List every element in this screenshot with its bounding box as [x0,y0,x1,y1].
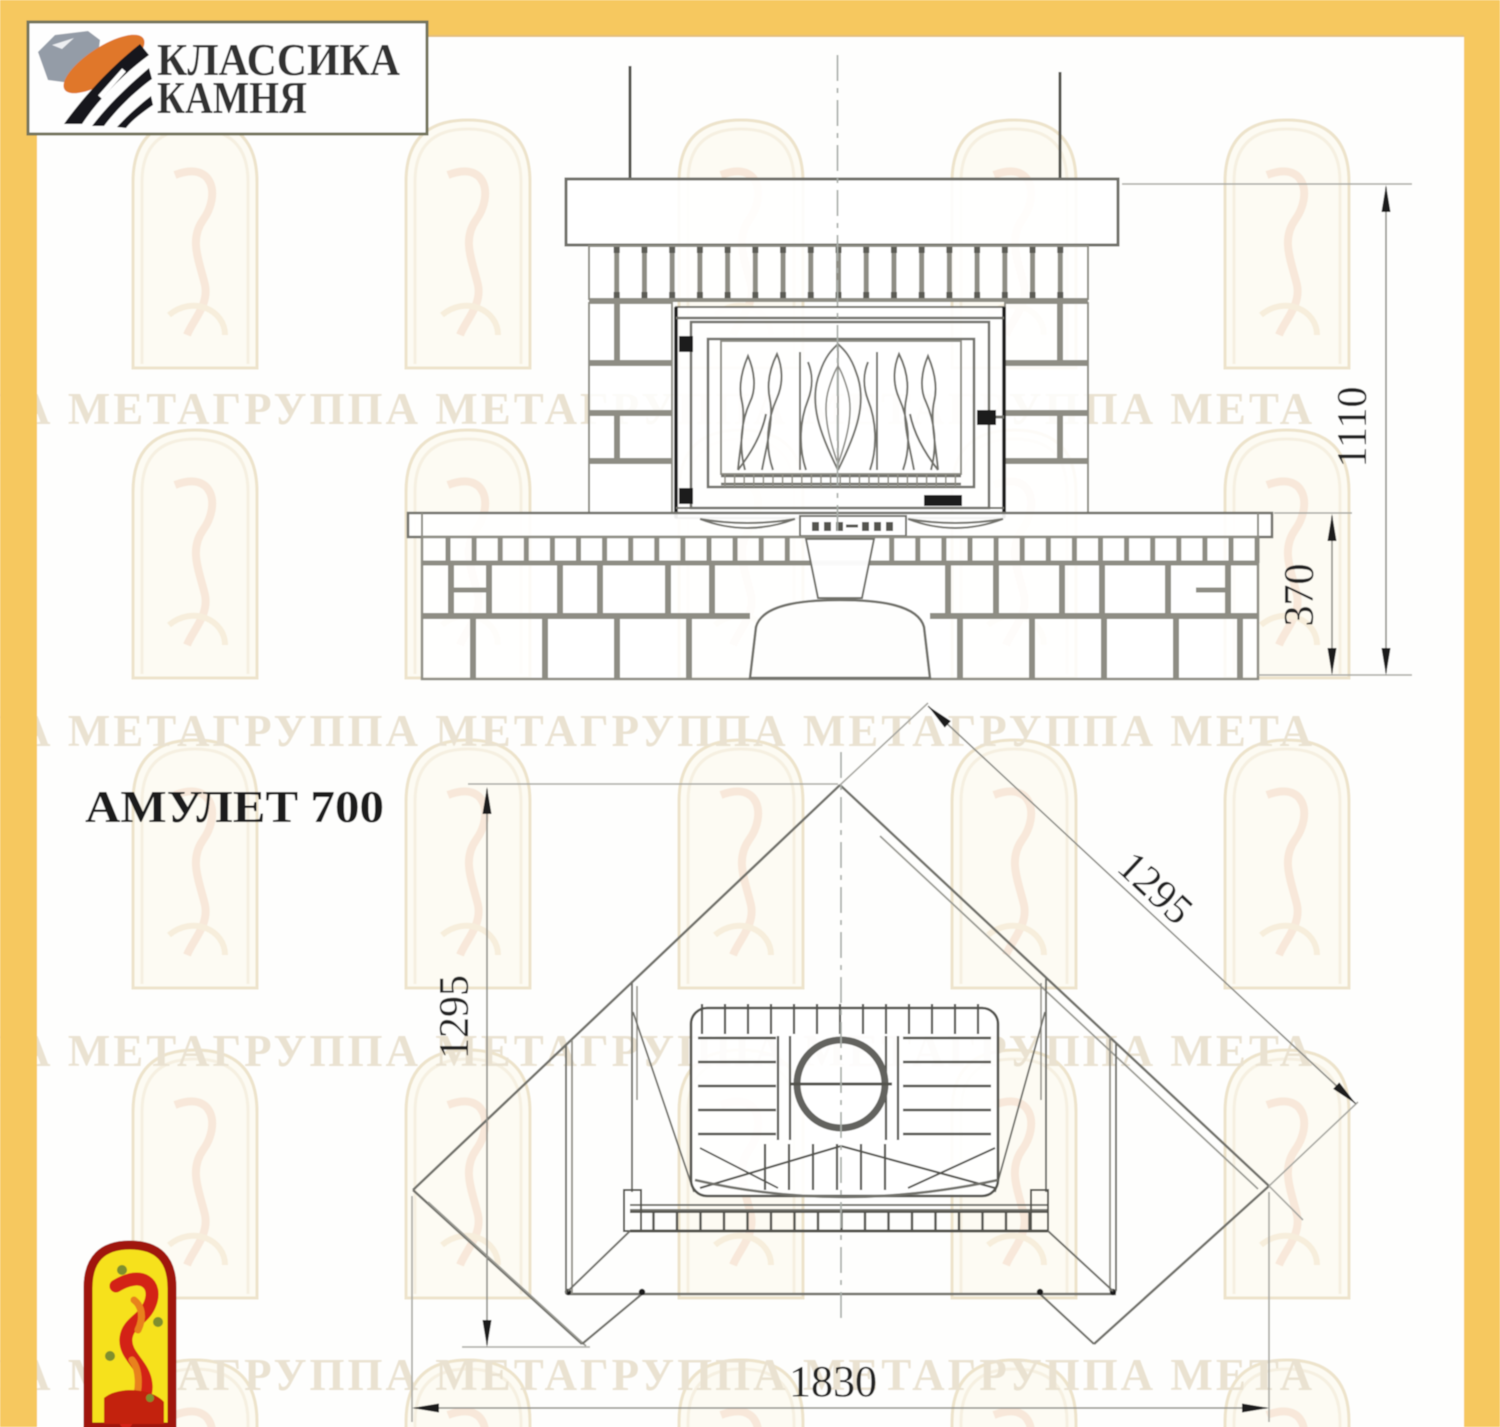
svg-text:ПА МЕТАГРУППА МЕТАГРУППА МЕТАГ: ПА МЕТАГРУППА МЕТАГРУППА МЕТАГРУППА МЕТА [0,706,1315,756]
svg-text:АМУЛЕТ 700: АМУЛЕТ 700 [85,781,384,832]
svg-text:КАМНЯ: КАМНЯ [157,72,307,123]
svg-text:ПА МЕТАГРУППА МЕТАГРУППА МЕТАГ: ПА МЕТАГРУППА МЕТАГРУППА МЕТАГРУППА МЕТА [0,1350,1315,1400]
svg-text:370: 370 [1277,564,1323,627]
svg-text:1295: 1295 [432,975,478,1059]
svg-text:1830: 1830 [789,1357,877,1406]
svg-text:ПА МЕТАГРУППА МЕТАГРУППА МЕТАГ: ПА МЕТАГРУППА МЕТАГРУППА МЕТАГРУППА МЕТА [0,1026,1315,1076]
svg-text:1110: 1110 [1330,387,1376,468]
